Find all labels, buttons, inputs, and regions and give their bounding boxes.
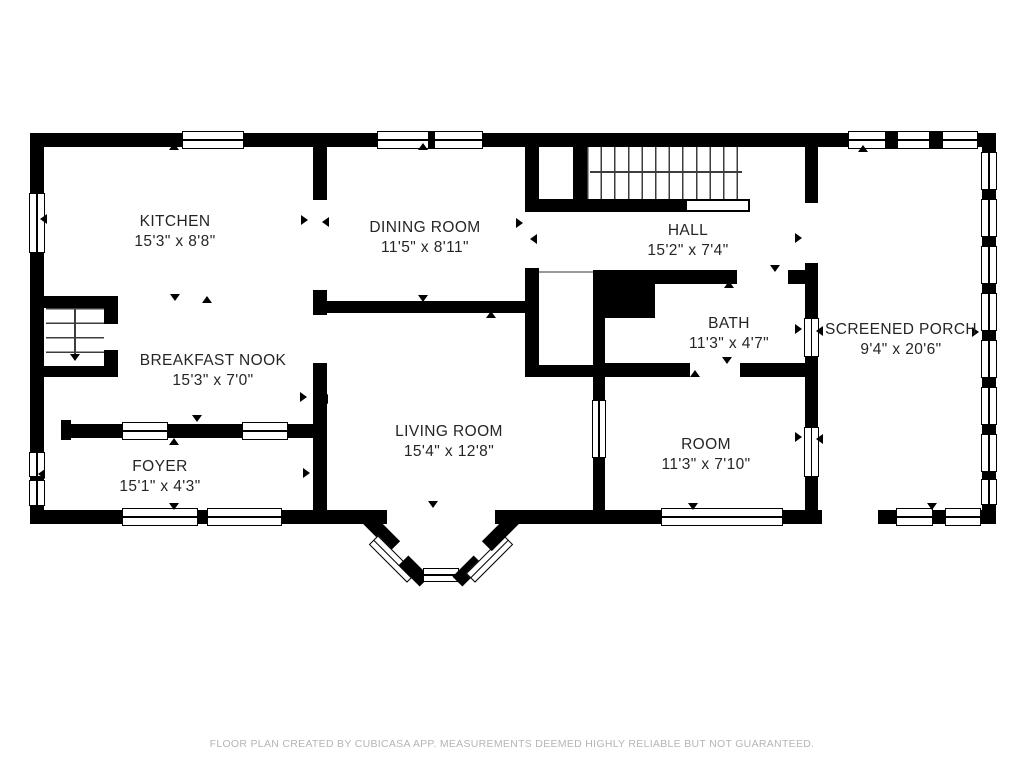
wall-porch-left-b [805, 263, 818, 318]
wall-nook-living-lower [313, 363, 327, 524]
marker-foyer-bottom-window [169, 503, 179, 510]
room-label-screened-porch: SCREENED PORCH 9'4" x 20'6" [825, 320, 977, 360]
window-porch-right-7 [981, 434, 997, 472]
marker-porch-bottom-window [927, 503, 937, 510]
window-porch-right-5 [981, 340, 997, 378]
room-dimensions: 15'4" x 12'8" [404, 443, 494, 460]
room-name: SCREENED PORCH [825, 321, 977, 338]
window-foyer-top-left [122, 422, 168, 440]
window-kitchen-top [182, 131, 244, 149]
marker-kitchen-nook-b [202, 296, 212, 303]
room-dimensions: 15'1" x 4'3" [119, 478, 200, 495]
marker-living-bottom [428, 501, 438, 508]
marker-room-bottom-window [688, 503, 698, 510]
window-foyer-bottom-right [207, 508, 282, 526]
wall-living-room-lower [593, 458, 605, 524]
wall-hall-bath-left [593, 270, 737, 284]
window-dining-top-right [434, 131, 483, 149]
marker-kitchen-left-window [40, 214, 47, 224]
window-porch-bottom-2 [945, 508, 981, 526]
wall-foyer-top [71, 424, 327, 438]
window-porch-right-4 [981, 293, 997, 331]
marker-porch-top-window [858, 145, 868, 152]
room-name: BATH [708, 315, 750, 332]
room-name: ROOM [681, 436, 731, 453]
marker-kitchen-top-window [169, 143, 179, 150]
marker-hall-porch-door [795, 233, 802, 243]
marker-foyer-top-a [192, 415, 202, 422]
marker-bath-room-door-b [690, 370, 700, 377]
wall-dining-hall-upper [525, 133, 539, 199]
window-porch-right-1 [981, 152, 997, 190]
window-bath-right [804, 318, 819, 357]
window-porch-right-3 [981, 246, 997, 284]
window-porch-right-6 [981, 387, 997, 425]
marker-hall-bath-door-b [724, 281, 734, 288]
marker-room-window-a [795, 432, 802, 442]
marker-dining-living-wall-b [486, 311, 496, 318]
marker-dining-hall-opening-b [530, 234, 537, 244]
room-dimensions: 11'3" x 4'7" [689, 335, 769, 352]
room-label-breakfast-nook: BREAKFAST NOOK 15'3" x 7'0" [140, 351, 287, 391]
room-label-kitchen: KITCHEN 15'3" x 8'8" [134, 212, 215, 252]
room-dimensions: 15'3" x 8'8" [134, 233, 215, 250]
room-name: DINING ROOM [369, 219, 480, 236]
closet-opening-header [539, 271, 593, 273]
marker-foyer-top-b [169, 438, 179, 445]
marker-dining-top-window [418, 143, 428, 150]
window-foyer-top-right [242, 422, 288, 440]
footer-disclaimer: FLOOR PLAN CREATED BY CUBICASA APP. MEAS… [0, 738, 1024, 750]
room-dimensions: 11'5" x 8'11" [381, 239, 469, 256]
marker-bath-window-a [795, 324, 802, 334]
window-foyer-left-b [29, 480, 45, 506]
staircase-upper-centerline [590, 171, 742, 173]
window-porch-top-divider-2 [930, 131, 942, 149]
marker-dining-living-wall-a [418, 295, 428, 302]
wall-below-stairs [525, 199, 685, 212]
staircase-upper-landing [685, 199, 750, 212]
window-porch-top-divider-1 [886, 131, 897, 149]
room-label-living-room: LIVING ROOM 15'4" x 12'8" [395, 422, 503, 462]
room-label-dining-room: DINING ROOM 11'5" x 8'11" [369, 218, 480, 258]
wall-porch-left-c [805, 357, 818, 427]
wall-living-bath [593, 284, 605, 400]
staircase-lower-direction-arrow [70, 354, 80, 361]
room-name: BREAKFAST NOOK [140, 352, 287, 369]
wall-porch-left-d [805, 477, 818, 524]
room-dimensions: 15'3" x 7'0" [172, 372, 253, 389]
staircase-upper-treads [587, 147, 750, 199]
room-dimensions: 11'3" x 7'10" [661, 456, 750, 473]
marker-foyer-left-window [38, 469, 45, 479]
wall-foyer-top-cap [61, 420, 71, 440]
staircase-lower-centerline [74, 308, 76, 360]
room-name: FOYER [132, 458, 187, 475]
window-porch-bottom-1 [896, 508, 933, 526]
marker-foyer-right [303, 468, 310, 478]
wall-porch-left-a [805, 133, 818, 203]
window-porch-right-2 [981, 199, 997, 237]
room-name: HALL [668, 222, 708, 239]
window-foyer-bottom-left [122, 508, 198, 526]
marker-nook-living-opening-a [300, 392, 307, 402]
window-living-room-divider [592, 400, 606, 458]
staircase-upper-direction-arrow [580, 167, 587, 177]
wall-bath-room-right [740, 363, 810, 377]
room-label-room: ROOM 11'3" x 7'10" [661, 435, 750, 475]
wall-kitchen-dining-upper [313, 133, 327, 200]
window-porch-top-2 [897, 131, 930, 149]
marker-hall-top [736, 140, 746, 147]
floor-plan: KITCHEN 15'3" x 8'8" DINING ROOM 11'5" x… [0, 0, 1024, 768]
marker-kitchen-nook-a [170, 294, 180, 301]
marker-nook-living-opening-b [321, 394, 328, 404]
wall-bath-notch [605, 284, 655, 318]
room-dimensions: 9'4" x 20'6" [860, 341, 941, 358]
room-name: LIVING ROOM [395, 423, 503, 440]
window-room-bottom [661, 508, 783, 526]
staircase-lower-right-wall-a [104, 296, 118, 324]
wall-bath-room-left [605, 363, 690, 377]
room-label-foyer: FOYER 15'1" x 4'3" [119, 457, 200, 497]
marker-dining-hall-opening-a [516, 218, 523, 228]
marker-bath-room-door-a [722, 357, 732, 364]
marker-kitchen-dining-door-b [322, 217, 329, 227]
marker-room-window-b [816, 434, 823, 444]
marker-bath-window-b [816, 326, 823, 336]
marker-hall-bath-door-a [770, 265, 780, 272]
window-porch-top-3 [942, 131, 978, 149]
room-dimensions: 15'2" x 7'4" [647, 242, 728, 259]
staircase-lower-bottom-wall [44, 366, 118, 377]
marker-kitchen-dining-door-a [301, 215, 308, 225]
room-name: KITCHEN [140, 213, 211, 230]
room-label-hall: HALL 15'2" x 7'4" [647, 221, 728, 261]
window-porch-right-8 [981, 479, 997, 505]
wall-closet-left [525, 268, 539, 377]
room-label-bath: BATH 11'3" x 4'7" [689, 314, 769, 354]
